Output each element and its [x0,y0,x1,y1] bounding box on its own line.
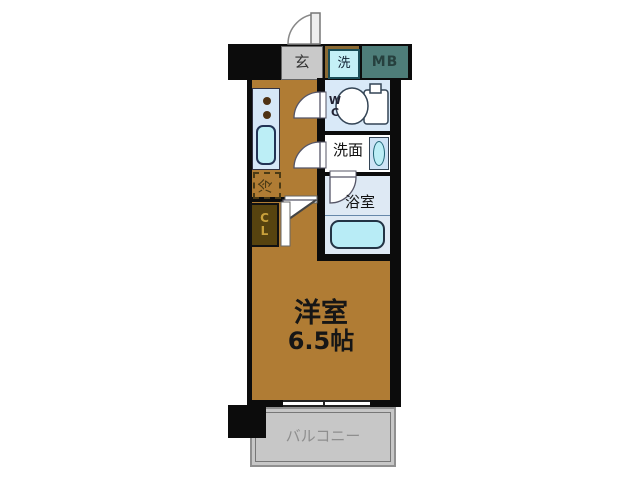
meter-box-label: MB [372,55,399,70]
washroom-label-text: 洗面 [333,143,363,159]
stove-burner-icon [263,97,271,105]
kitchen-counter [252,88,280,170]
balcony: バルコニー [250,407,396,467]
closet-label-l: L [261,225,269,238]
pillar-bottom-left [228,405,266,438]
closet-box: C L [250,203,279,247]
fridge-symbol: 冷 [259,178,275,193]
entrance-label: 玄 [294,55,309,71]
balcony-label: バルコニー [286,429,361,445]
washer-label: 洗 [337,57,350,71]
sink-basin-icon [373,141,385,166]
floorplan-canvas: 玄 洗 MB 冷 C L バルコニー [0,0,640,480]
balcony-window [283,400,370,407]
kitchen-sink-icon [256,125,276,165]
bathtub-icon [330,220,385,249]
washer-inner: 洗 [328,49,360,79]
main-room-name: 洋室 [294,300,348,328]
window-divider [323,402,325,405]
meter-box: MB [362,46,408,78]
wall-interior-vertical [317,78,325,258]
balcony-inner-rail: バルコニー [255,412,391,462]
sink-unit [369,137,389,170]
bathroom-label: 浴室 [338,193,382,213]
main-room-label: 洋室 6.5帖 [252,292,390,362]
wc-label: W C [327,88,343,126]
wall-bath-bottom [317,254,390,261]
entrance-genkan: 玄 [281,46,323,80]
bathroom-label-text: 浴室 [345,195,375,211]
entrance-door-icon [288,13,320,44]
fridge-space: 冷 [253,172,281,199]
main-room-size: 6.5帖 [288,329,355,354]
washer-box: 洗 [325,46,359,78]
wall-right [390,78,401,407]
washroom-label: 洗面 [328,141,368,161]
bathroom-tub-line [325,215,390,216]
stove-burner-icon [263,111,271,119]
wc-label-c: C [331,107,339,119]
